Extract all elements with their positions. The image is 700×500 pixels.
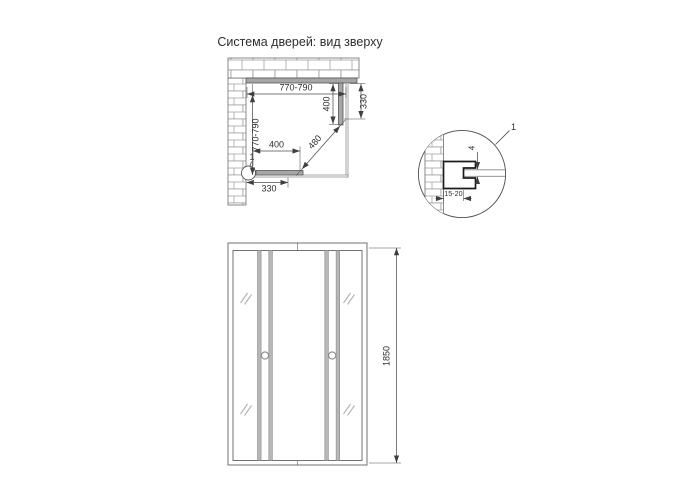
dim-diagonal-label: 480 (306, 133, 323, 151)
detail-callout-label: 1 (511, 122, 516, 132)
dim-door-height-label: 1850 (382, 346, 392, 366)
door-rail (336, 251, 340, 461)
callout-leader-line (250, 162, 252, 167)
door-system-drawing: Система дверей: вид зверху 1 770-790 770… (0, 0, 700, 500)
top-brick-wall (228, 58, 359, 78)
dim-right-offset-label: 330 (359, 94, 369, 109)
dim-right-panel-label: 400 (322, 96, 332, 111)
dim-depth-left-label: 770-790 (251, 118, 261, 151)
dim-glass-thickness-label: 4 (468, 145, 477, 150)
dim-diagonal-opening: 480 (296, 120, 346, 176)
dim-bottom-panel-label: 400 (269, 140, 284, 150)
door-inner-frame (233, 251, 362, 461)
dim-width-top: 770-790 (247, 83, 346, 99)
dim-door-height: 1850 (369, 248, 401, 463)
bottom-fixed-panel (256, 171, 303, 176)
tray-right-edge (346, 83, 348, 177)
plan-view: 1 770-790 770-790 400 330 (228, 58, 369, 205)
door-rail (325, 251, 329, 461)
technical-drawing-page: Система дверей: вид зверху 1 770-790 770… (0, 0, 700, 500)
dim-right-panel: 400 (322, 84, 341, 125)
dim-bottom-offset: 330 (247, 178, 289, 194)
dim-width-top-label: 770-790 (279, 83, 312, 93)
door-rail (269, 251, 273, 461)
page-title: Система дверей: вид зверху (217, 35, 383, 49)
dim-bottom-offset-label: 330 (261, 184, 276, 194)
left-door-handle (261, 352, 268, 359)
detail-view: 4 15-20 1 (418, 122, 516, 222)
door-rail (258, 251, 262, 461)
elevation-view: 1850 (228, 243, 401, 465)
left-brick-wall (228, 78, 246, 205)
right-door-handle (329, 352, 336, 359)
detail-callout-circle (242, 166, 256, 180)
dim-profile-adjustment-label: 15-20 (444, 189, 462, 198)
plan-detail-callout-label: 1 (249, 152, 254, 162)
detail-leader-line (496, 131, 510, 145)
right-fixed-panel (339, 83, 344, 125)
